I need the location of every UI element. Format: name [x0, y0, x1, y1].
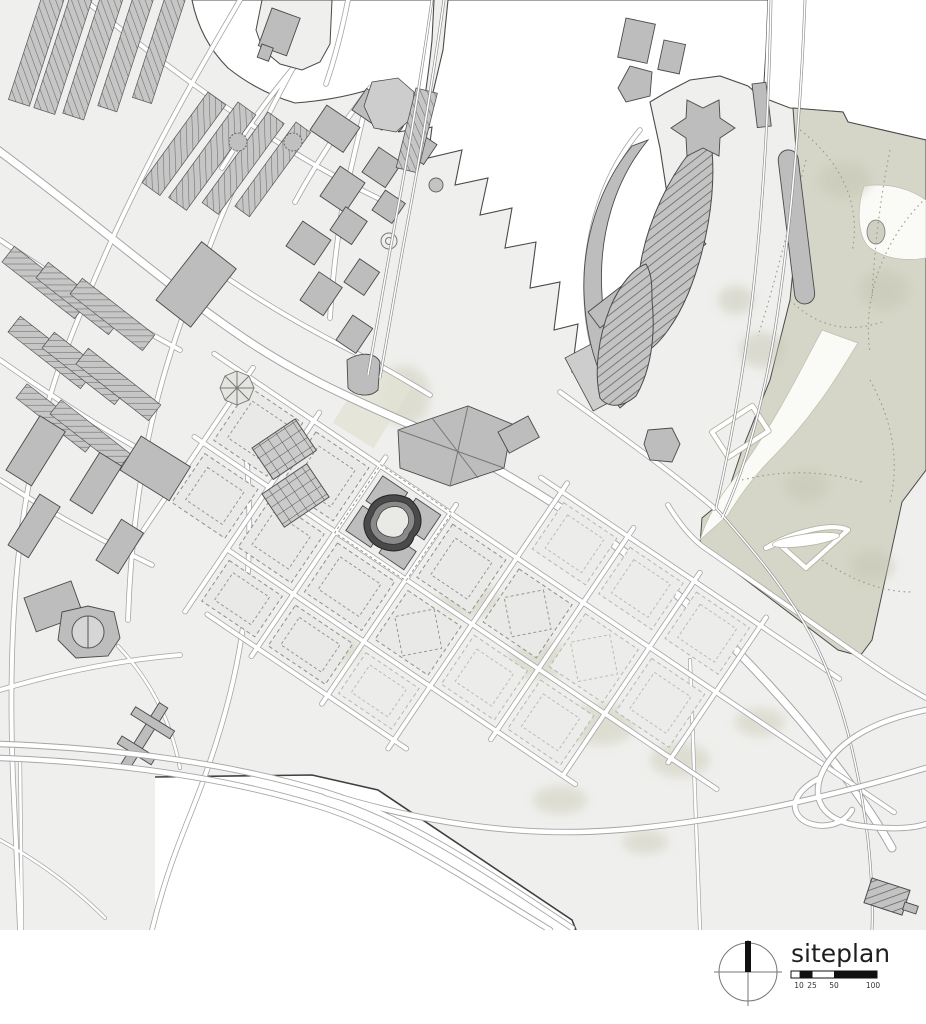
- scale-tick: 50: [829, 981, 839, 990]
- round-building: [429, 178, 443, 192]
- scale-tick: 100: [866, 981, 881, 990]
- north-needle: [745, 941, 751, 972]
- scale-tick: 25: [807, 981, 817, 990]
- siteplan-label: siteplan: [791, 939, 890, 968]
- sunburst-plaza: [229, 133, 247, 151]
- scale-tick: 10: [794, 981, 804, 990]
- paper-margin: [0, 930, 926, 1024]
- building: [347, 354, 380, 395]
- siteplan-page: siteplan 10 25 50 100: [0, 0, 926, 1024]
- sunburst-plaza: [284, 133, 302, 151]
- building: [644, 428, 680, 462]
- park-pond: [867, 220, 885, 244]
- bay-peninsula: [256, 0, 332, 70]
- octagon-plaza: [220, 371, 254, 405]
- siteplan-drawing: siteplan 10 25 50 100: [0, 0, 926, 1024]
